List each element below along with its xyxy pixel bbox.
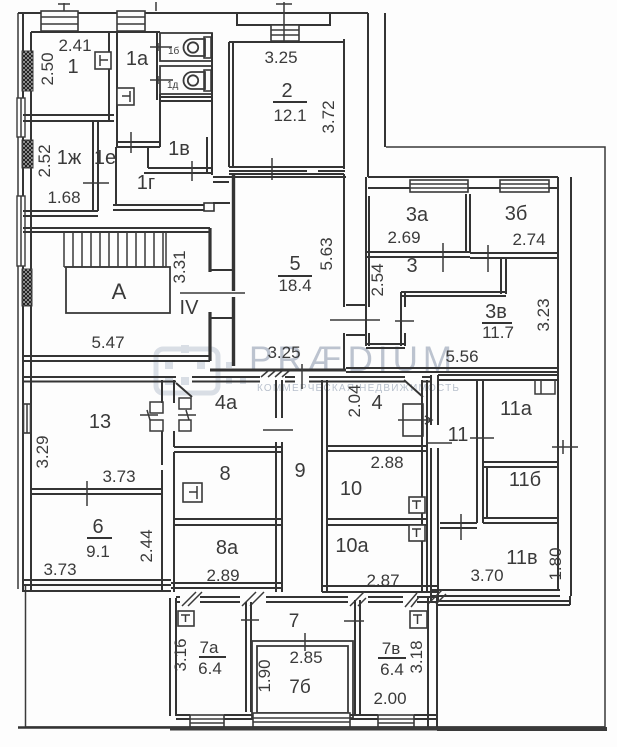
- svg-text:13: 13: [89, 411, 111, 433]
- svg-text:5: 5: [289, 253, 300, 275]
- svg-text:11б: 11б: [509, 469, 541, 491]
- svg-text:2.50: 2.50: [38, 52, 57, 85]
- svg-text:1в: 1в: [168, 138, 190, 160]
- svg-text:2.85: 2.85: [289, 648, 322, 667]
- svg-text:3а: 3а: [406, 204, 429, 226]
- svg-text:2.87: 2.87: [366, 571, 399, 590]
- svg-text:18.4: 18.4: [278, 276, 311, 295]
- svg-text:3.29: 3.29: [33, 435, 52, 468]
- svg-text:11в: 11в: [506, 547, 537, 569]
- svg-text:1г: 1г: [137, 172, 155, 194]
- svg-text:6.4: 6.4: [198, 659, 222, 678]
- svg-text:2.69: 2.69: [387, 228, 420, 247]
- svg-text:11а: 11а: [500, 398, 533, 420]
- svg-text:2.74: 2.74: [512, 230, 545, 249]
- svg-text:3.72: 3.72: [319, 100, 338, 133]
- svg-text:9: 9: [294, 460, 305, 482]
- svg-text:5.56: 5.56: [445, 347, 478, 366]
- svg-text:9.1: 9.1: [86, 542, 110, 561]
- svg-text:1д: 1д: [167, 80, 179, 91]
- svg-text:А: А: [112, 279, 127, 304]
- svg-text:3.73: 3.73: [43, 560, 76, 579]
- svg-text:3.23: 3.23: [534, 298, 553, 331]
- svg-text:1a: 1a: [126, 48, 149, 70]
- svg-text:3: 3: [406, 255, 417, 277]
- svg-text:5.63: 5.63: [317, 237, 336, 270]
- svg-text:3.18: 3.18: [407, 640, 426, 673]
- svg-text:2.88: 2.88: [370, 453, 403, 472]
- svg-text:10а: 10а: [335, 535, 369, 557]
- svg-text:6: 6: [92, 516, 103, 538]
- svg-text:8: 8: [219, 463, 230, 485]
- svg-text:IV: IV: [180, 297, 200, 319]
- svg-text:2.44: 2.44: [137, 529, 156, 562]
- svg-text:6.4: 6.4: [380, 660, 404, 679]
- svg-text:2.04: 2.04: [345, 384, 364, 417]
- svg-text:1: 1: [67, 56, 78, 78]
- svg-text:3.16: 3.16: [171, 638, 190, 671]
- svg-text:1е: 1е: [94, 147, 116, 169]
- svg-text:3.73: 3.73: [102, 467, 135, 486]
- svg-text:3б: 3б: [505, 203, 528, 225]
- svg-text:3.70: 3.70: [470, 566, 503, 585]
- svg-text:10: 10: [340, 478, 362, 500]
- svg-text:1.80: 1.80: [546, 547, 565, 580]
- svg-text:1.68: 1.68: [47, 188, 80, 207]
- svg-text:2.00: 2.00: [373, 689, 406, 708]
- svg-text:2.54: 2.54: [368, 263, 387, 296]
- svg-text:2.41: 2.41: [58, 36, 91, 55]
- svg-text:5.47: 5.47: [91, 333, 124, 352]
- svg-text:1ж: 1ж: [57, 147, 82, 169]
- svg-text:3.25: 3.25: [267, 343, 300, 362]
- svg-text:7а: 7а: [200, 638, 219, 657]
- svg-text:2: 2: [281, 80, 292, 102]
- svg-text:7б: 7б: [289, 677, 311, 698]
- svg-text:2.52: 2.52: [35, 144, 54, 177]
- svg-text:12.1: 12.1: [273, 106, 306, 125]
- svg-text:7в: 7в: [382, 639, 401, 658]
- svg-text:3.25: 3.25: [264, 48, 297, 67]
- svg-text:4а: 4а: [215, 392, 238, 414]
- svg-text:1.90: 1.90: [255, 659, 274, 692]
- svg-text:11.7: 11.7: [482, 323, 514, 342]
- svg-text:4: 4: [371, 392, 382, 414]
- svg-text:3.31: 3.31: [170, 250, 189, 283]
- svg-text:3в: 3в: [485, 301, 507, 323]
- svg-text:7: 7: [289, 611, 300, 632]
- svg-text:8а: 8а: [216, 537, 239, 559]
